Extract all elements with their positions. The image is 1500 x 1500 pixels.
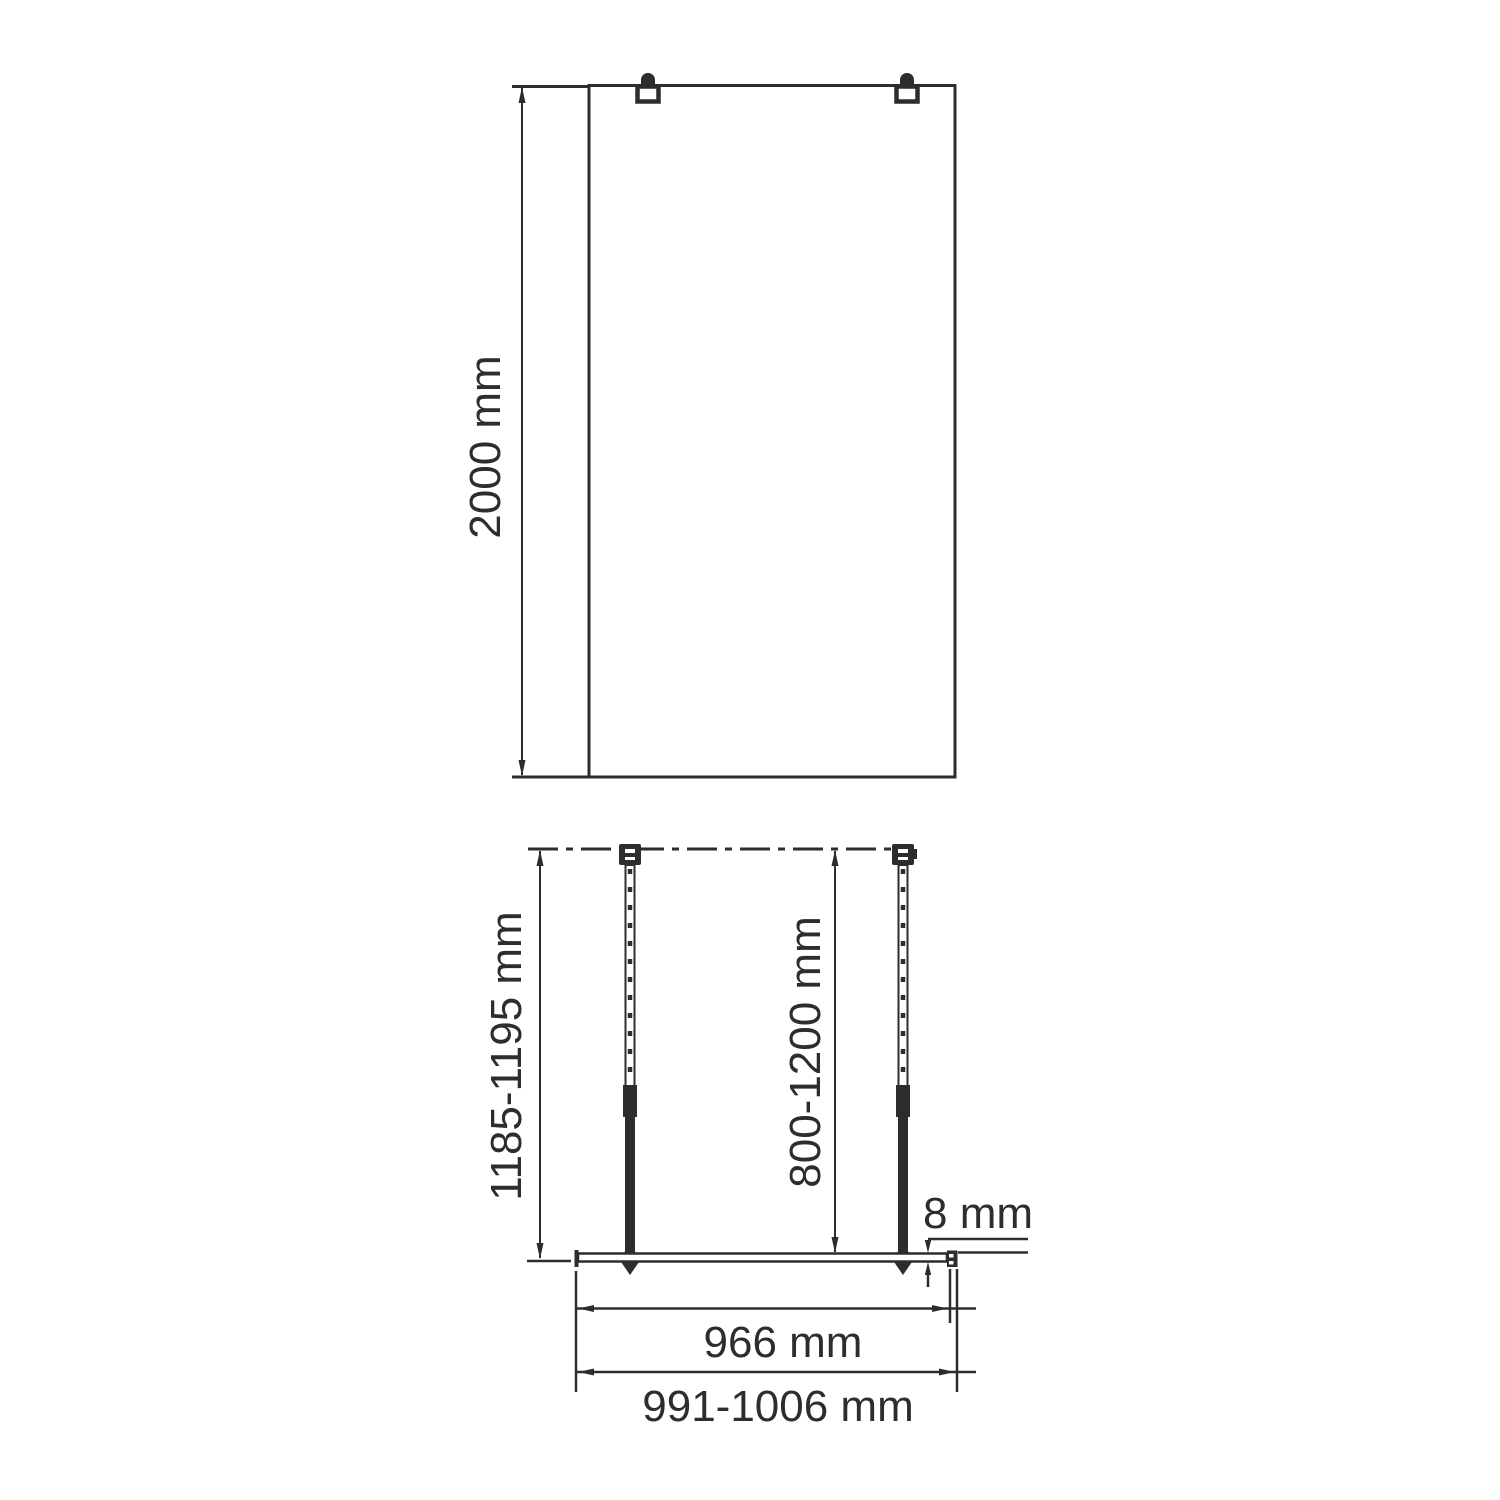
bar-adjust-sleeve xyxy=(623,1085,637,1117)
bracket-slot xyxy=(625,849,635,853)
bracket-slot xyxy=(625,857,635,860)
dimension-label-overall-width: 991-1006 mm xyxy=(642,1382,913,1431)
wall-bracket-icon xyxy=(892,844,914,865)
bracket-tab xyxy=(913,849,917,859)
glass-edge xyxy=(578,1254,947,1262)
bar-adjust-sleeve xyxy=(896,1085,910,1117)
technical-drawing-page: 2000 mm xyxy=(0,0,1500,1500)
bar-lower-tube xyxy=(898,1114,908,1255)
dimension-label-glass-thickness: 8 mm xyxy=(923,1189,1033,1238)
glass-panel-front xyxy=(589,86,955,778)
wall-profile xyxy=(947,1251,958,1268)
shower-screen-technical-drawing: 2000 mm xyxy=(0,0,1500,1500)
bracket-slot xyxy=(898,857,908,860)
dimension-label-bar-length: 1185-1195 mm xyxy=(482,911,531,1200)
bracket-slot xyxy=(898,849,908,853)
wall-profile-slot xyxy=(949,1254,954,1258)
clamp-body xyxy=(897,87,918,102)
clamp-body xyxy=(638,87,659,102)
dimension-label-glass-width: 966 mm xyxy=(704,1318,863,1367)
dimension-label-adjust-range: 800-1200 mm xyxy=(781,916,830,1187)
dimension-label-height: 2000 mm xyxy=(461,355,510,538)
bar-lower-tube xyxy=(625,1114,635,1255)
wall-profile-slot xyxy=(949,1261,954,1265)
wall-bracket-icon xyxy=(619,844,641,865)
